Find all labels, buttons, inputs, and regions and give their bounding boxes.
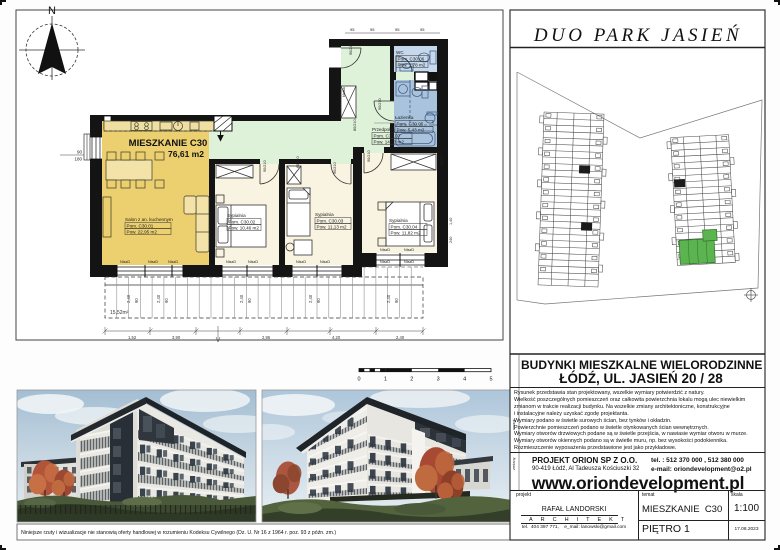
svg-text:NiszD: NiszD	[404, 260, 414, 264]
svg-text:DUO PARK JASIEŃ: DUO PARK JASIEŃ	[533, 24, 742, 46]
svg-text:NiszD: NiszD	[148, 260, 158, 264]
svg-text:90: 90	[77, 150, 83, 155]
svg-text:0: 0	[357, 377, 360, 383]
svg-text:Pom. C30.06: Pom. C30.06	[398, 56, 425, 61]
svg-text:90/210: 90/210	[378, 98, 382, 110]
svg-text:Salon z an. kuchennym: Salon z an. kuchennym	[125, 217, 173, 222]
svg-text:NiszD: NiszD	[380, 260, 390, 264]
svg-text:zmiany: zmiany	[511, 457, 516, 470]
svg-text:1: 1	[384, 377, 387, 383]
svg-text:90: 90	[394, 298, 399, 303]
svg-text:NiszD: NiszD	[226, 260, 236, 264]
svg-text:1,52: 1,52	[128, 335, 137, 340]
svg-text:95: 95	[350, 27, 355, 32]
svg-text:2,40: 2,40	[156, 294, 161, 303]
svg-text:2: 2	[410, 377, 413, 383]
svg-text:Pow. 11,82 m2: Pow. 11,82 m2	[391, 230, 421, 235]
svg-text:3,90: 3,90	[172, 335, 181, 340]
svg-text:NiszD: NiszD	[168, 260, 178, 264]
svg-text:Pom. C30.02: Pom. C30.02	[229, 219, 256, 224]
svg-text:90/210: 90/210	[349, 43, 353, 55]
svg-text:80/210: 80/210	[296, 156, 300, 168]
svg-text:NiszD: NiszD	[296, 260, 306, 264]
svg-text:2,40: 2,40	[396, 335, 405, 340]
svg-text:NiszD: NiszD	[320, 260, 330, 264]
svg-text:Pow. 10,46 m2: Pow. 10,46 m2	[229, 225, 260, 230]
svg-text:2,40: 2,40	[126, 294, 131, 303]
svg-text:Pow. 1,78 m2: Pow. 1,78 m2	[398, 62, 426, 67]
svg-text:NiszD: NiszD	[380, 248, 390, 252]
svg-text:3: 3	[437, 377, 440, 383]
svg-text:WC: WC	[396, 50, 404, 55]
svg-text:Pow. 22,95 m2: Pow. 22,95 m2	[127, 229, 158, 234]
svg-text:1,40: 1,40	[449, 218, 453, 225]
svg-text:90/210: 90/210	[263, 160, 267, 172]
svg-text:Pom. C30.04: Pom. C30.04	[391, 224, 418, 229]
svg-text:Sypialnia: Sypialnia	[315, 212, 334, 217]
svg-text:5: 5	[489, 377, 492, 383]
svg-text:Pom. C30.03: Pom. C30.03	[317, 218, 344, 223]
svg-text:95: 95	[420, 27, 425, 32]
svg-text:NiszD: NiszD	[120, 260, 130, 264]
svg-text:90: 90	[134, 298, 139, 303]
svg-text:240: 240	[449, 237, 453, 243]
svg-text:2,40: 2,40	[386, 294, 391, 303]
svg-text:2,40: 2,40	[239, 294, 244, 303]
svg-text:NiszD: NiszD	[248, 260, 258, 264]
svg-text:Pow. 11,13 m2: Pow. 11,13 m2	[317, 224, 347, 229]
svg-text:76,61 m2: 76,61 m2	[168, 149, 204, 159]
svg-text:N: N	[48, 5, 56, 17]
svg-text:15,52m²: 15,52m²	[110, 310, 129, 316]
svg-text:80/210: 80/210	[353, 119, 357, 131]
svg-text:2,95: 2,95	[262, 335, 271, 340]
svg-text:Pow. 5,43 m2: Pow. 5,43 m2	[397, 127, 425, 132]
svg-text:90/210: 90/210	[367, 150, 371, 162]
svg-text:4: 4	[463, 377, 466, 383]
svg-text:Pom. C30.05: Pom. C30.05	[397, 121, 424, 126]
svg-text:Pow. 14,23 m2: Pow. 14,23 m2	[374, 139, 405, 144]
svg-text:95: 95	[370, 27, 375, 32]
svg-text:MIESZKANIE C30: MIESZKANIE C30	[129, 138, 208, 149]
svg-text:Sypialnia: Sypialnia	[389, 218, 408, 223]
svg-text:NiszD: NiszD	[404, 248, 414, 252]
svg-text:90: 90	[247, 298, 252, 303]
svg-text:Pom. C30.01: Pom. C30.01	[127, 223, 154, 228]
svg-text:180: 180	[74, 157, 82, 162]
svg-text:Niniejsze rzuty i wizualizacje: Niniejsze rzuty i wizualizacje nie stano…	[21, 530, 336, 536]
svg-text:95: 95	[395, 27, 400, 32]
svg-text:Przedpokój: Przedpokój	[372, 127, 395, 132]
svg-text:Łazienka: Łazienka	[395, 115, 414, 120]
svg-text:90/210: 90/210	[440, 154, 444, 166]
svg-text:4,20: 4,20	[332, 335, 341, 340]
svg-text:2,40: 2,40	[308, 294, 313, 303]
svg-text:90: 90	[164, 298, 169, 303]
svg-text:klatka: klatka	[342, 86, 346, 97]
svg-text:Sypialnia: Sypialnia	[227, 213, 246, 218]
svg-text:Pom. C30.07: Pom. C30.07	[374, 133, 401, 138]
svg-text:90/210: 90/210	[333, 162, 337, 174]
svg-text:90: 90	[316, 298, 321, 303]
